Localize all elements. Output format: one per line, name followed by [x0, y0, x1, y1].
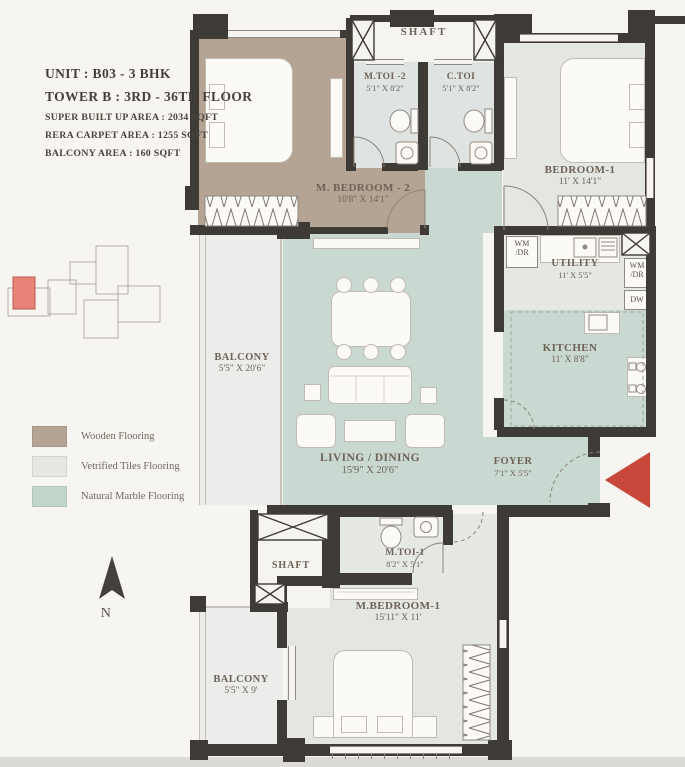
dr-label: /DR	[630, 270, 643, 279]
sofa	[328, 366, 412, 404]
window-bedroom-1-side	[646, 158, 654, 198]
wall	[267, 505, 452, 517]
wall	[588, 437, 600, 457]
dr-label: /DR	[515, 248, 528, 257]
window-mullion-ticks	[332, 753, 460, 759]
label-m-toi-2: M.TOI -2 5'1" X 8'2"	[352, 72, 418, 93]
kitchen-sink	[584, 312, 620, 334]
pillow	[629, 122, 645, 148]
label-utility: UTILITY 11' X 5'5"	[528, 258, 622, 280]
rera-carpet-area: RERA CARPET AREA : 1255 SQFT	[45, 130, 252, 141]
dw-label: DW	[630, 295, 643, 304]
armchair	[296, 414, 336, 448]
window-m-bedroom-2	[228, 30, 340, 38]
passage-floor	[425, 168, 502, 233]
label-kitchen: KITCHEN 11' X 8'8"	[510, 342, 630, 365]
tiles-flooring-swatch	[32, 456, 67, 477]
flooring-legend: Wooden Flooring Vetrified Tiles Flooring…	[32, 426, 184, 516]
legend-item-marble: Natural Marble Flooring	[32, 486, 184, 507]
side-table	[304, 384, 321, 401]
wall	[458, 163, 502, 171]
wall	[443, 510, 453, 545]
unit-title: UNIT : B03 - 3 BHK	[45, 66, 252, 82]
legend-label: Wooden Flooring	[81, 431, 155, 442]
wall	[190, 225, 287, 235]
legend-item-tiles: Vetrified Tiles Flooring	[32, 456, 184, 477]
wall	[646, 235, 656, 437]
super-built-up-area: SUPER BUILT UP AREA : 2034 SQFT	[45, 112, 252, 123]
wall	[277, 586, 287, 648]
wooden-flooring-swatch	[32, 426, 67, 447]
wm-label: WM	[630, 261, 645, 270]
label-living-dining: LIVING / DINING 15'9" X 20'6"	[300, 452, 440, 476]
wall	[190, 596, 206, 612]
armchair	[405, 414, 445, 448]
floor-plan-page: UNIT : B03 - 3 BHK TOWER B : 3RD - 36TH …	[0, 0, 685, 767]
label-bedroom-1: BEDROOM-1 11' X 14'1"	[520, 164, 640, 187]
dressing-ledge	[333, 588, 418, 600]
wall	[497, 427, 656, 437]
entry-arrow	[605, 452, 650, 508]
key-plan	[8, 246, 160, 338]
wall	[418, 62, 428, 170]
tv-unit	[313, 238, 420, 249]
wall	[588, 503, 610, 517]
wall	[346, 18, 354, 170]
wall	[494, 235, 504, 332]
wm-label: WM	[515, 239, 530, 248]
wall	[645, 30, 655, 235]
label-balcony-left: BALCONY 5'5" X 20'6"	[202, 352, 282, 374]
wall	[494, 226, 656, 235]
unit-info-block: UNIT : B03 - 3 BHK TOWER B : 3RD - 36TH …	[45, 66, 252, 166]
label-foyer: FOYER 7'1" X 5'5"	[477, 456, 549, 478]
label-shaft-bottom: SHAFT	[255, 560, 327, 571]
wall	[390, 10, 434, 27]
wall	[382, 163, 418, 171]
vent-m-toi-2	[366, 59, 404, 65]
wall	[420, 225, 429, 235]
label-c-toi: C.TOI 5'1" X 8'2"	[428, 72, 494, 93]
legend-label: Natural Marble Flooring	[81, 491, 184, 502]
legend-label: Vetrified Tiles Flooring	[81, 461, 180, 472]
window-m-bedroom-1-side	[499, 620, 507, 648]
marble-flooring-swatch	[32, 486, 67, 507]
label-m-bedroom-1: M.BEDROOM-1 15'11" X 11'	[328, 600, 468, 623]
wall	[337, 573, 412, 585]
wall	[185, 186, 199, 210]
legend-item-wooden: Wooden Flooring	[32, 426, 184, 447]
coffee-table	[344, 420, 396, 442]
pillow	[629, 84, 645, 110]
north-compass-arrow	[99, 556, 125, 599]
wall	[655, 16, 685, 24]
dresser-m-bedroom-2	[330, 78, 343, 158]
wall	[310, 227, 388, 234]
wall	[497, 505, 590, 517]
vent-c-toi	[434, 59, 472, 65]
side-table	[420, 387, 437, 404]
wall	[277, 222, 310, 239]
label-m-toi-1: M.TOI-1 8'2" X 5'1"	[362, 548, 448, 569]
wall	[494, 40, 504, 170]
wall	[346, 163, 356, 171]
dresser-bedroom-1	[504, 77, 517, 159]
wall	[494, 398, 504, 430]
key-plan-unit-highlight	[13, 277, 35, 309]
dining-table	[331, 291, 411, 347]
north-label: N	[92, 606, 120, 622]
label-balcony-bottom: BALCONY 5'5" X 9'	[202, 674, 280, 696]
label-m-bedroom-2: M. BEDROOM - 2 10'8" X 14'1"	[297, 182, 429, 205]
slider-m-bedroom-1-balcony	[288, 646, 296, 700]
wall	[277, 576, 337, 586]
label-shaft-top: SHAFT	[350, 26, 498, 38]
pillow	[341, 716, 367, 733]
pillow	[377, 716, 403, 733]
tower-title: TOWER B : 3RD - 36TH FLOOR	[45, 89, 252, 105]
window-bedroom-1	[520, 34, 618, 42]
balcony-area: BALCONY AREA : 160 SQFT	[45, 148, 252, 159]
